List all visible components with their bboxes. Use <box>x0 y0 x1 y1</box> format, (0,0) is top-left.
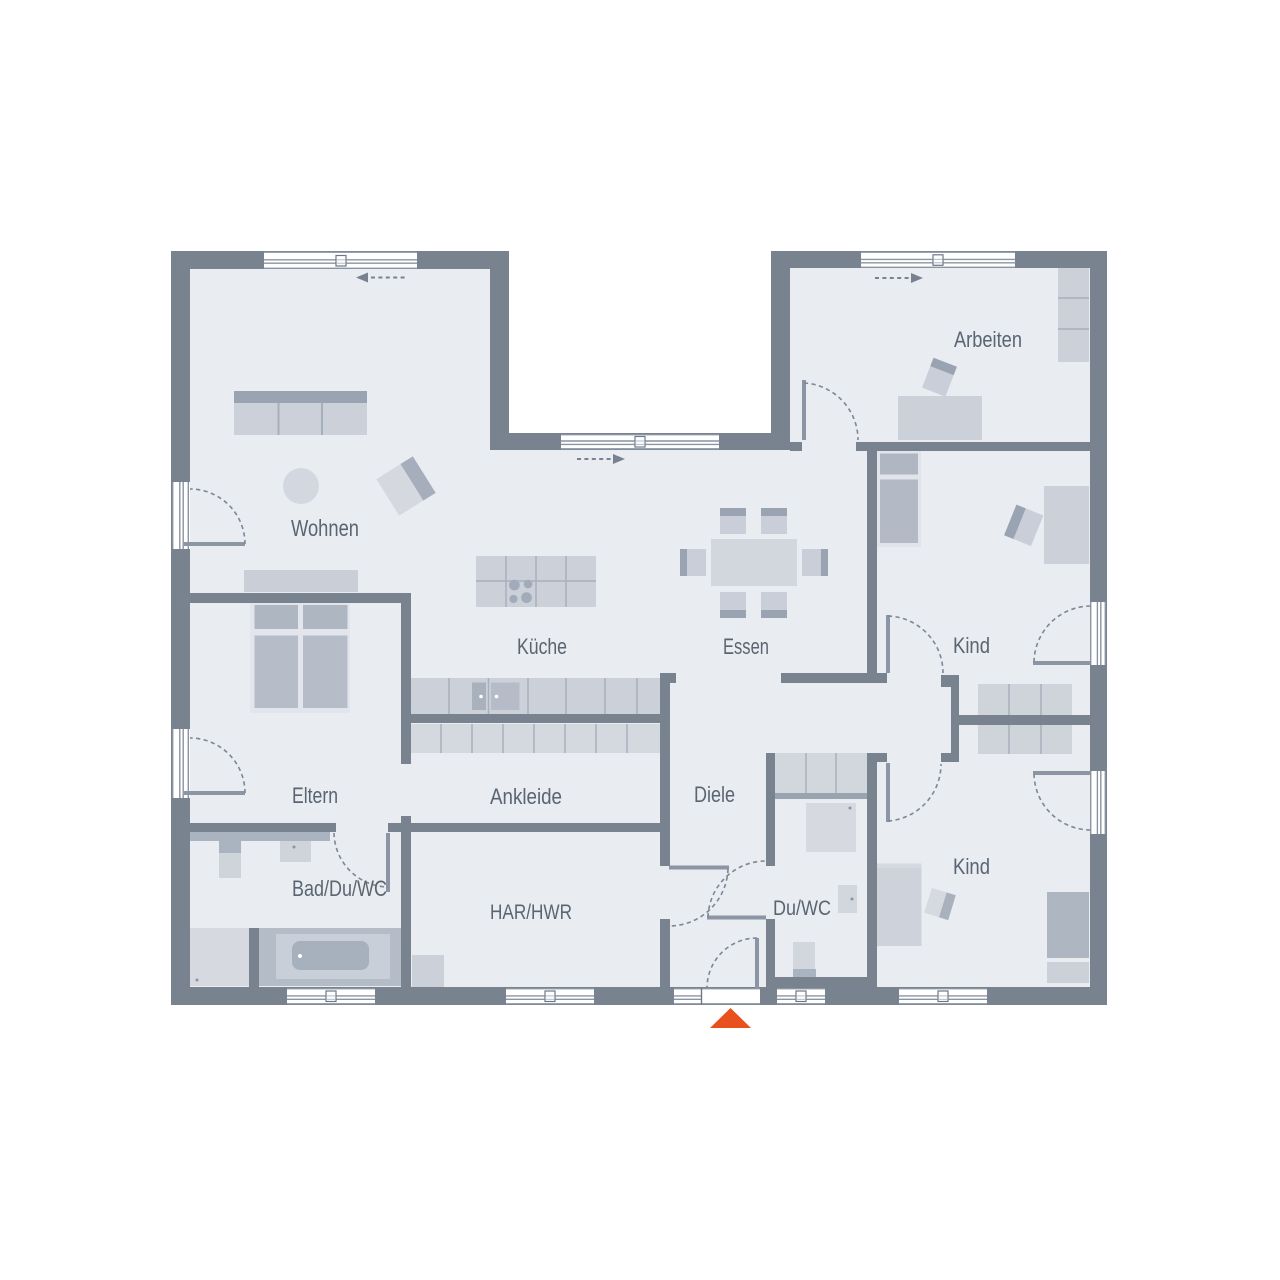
svg-text:Kind: Kind <box>953 854 990 879</box>
svg-text:Essen: Essen <box>723 634 769 659</box>
svg-text:Ankleide: Ankleide <box>490 784 562 809</box>
svg-text:Küche: Küche <box>517 634 567 659</box>
svg-text:Eltern: Eltern <box>292 783 338 808</box>
svg-text:Bad/Du/WC: Bad/Du/WC <box>292 876 387 901</box>
svg-text:Arbeiten: Arbeiten <box>954 327 1022 352</box>
svg-text:HAR/HWR: HAR/HWR <box>490 901 572 924</box>
svg-text:Wohnen: Wohnen <box>291 515 359 541</box>
svg-text:Diele: Diele <box>694 782 735 807</box>
svg-text:Du/WC: Du/WC <box>773 897 831 920</box>
svg-text:Kind: Kind <box>953 633 990 658</box>
